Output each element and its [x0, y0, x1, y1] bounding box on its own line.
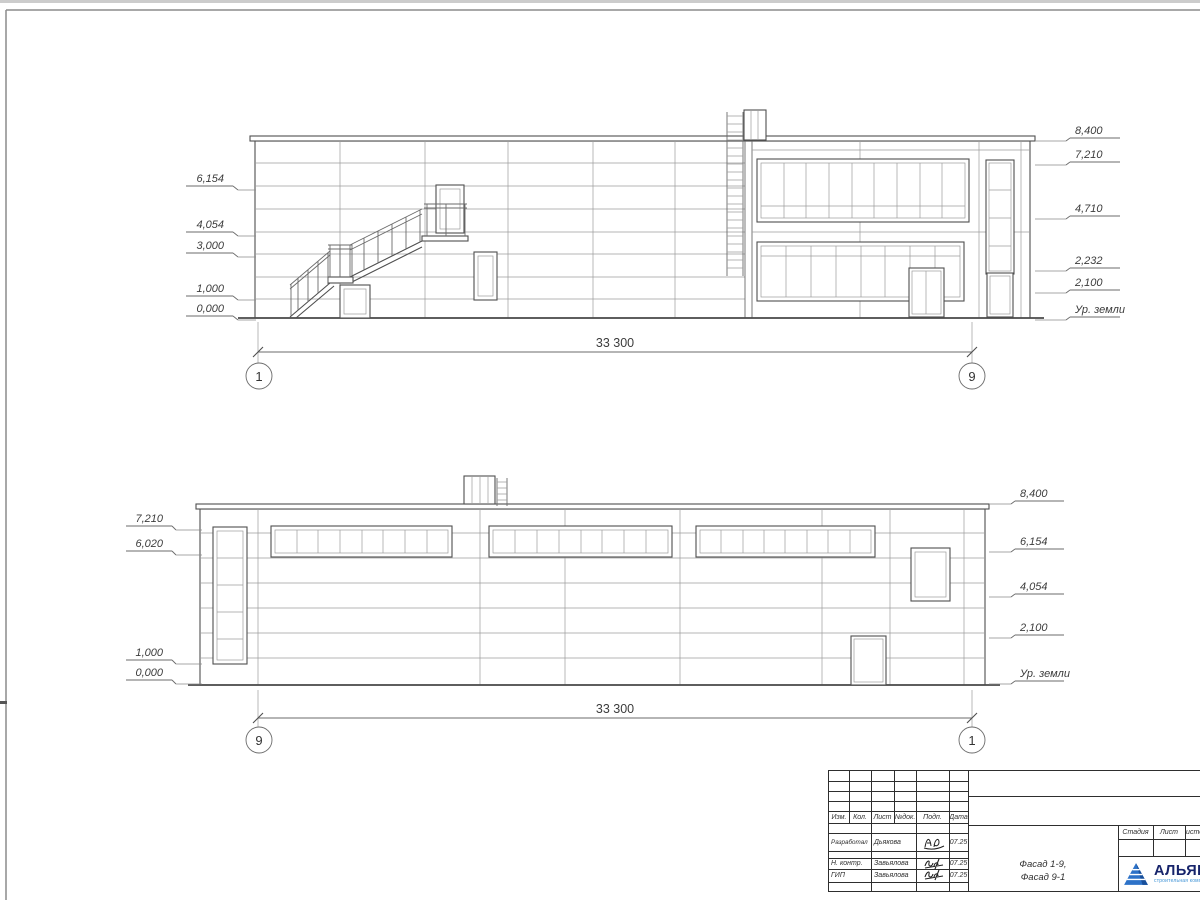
entrance-door [909, 268, 944, 317]
mark-0000-b: 0,000 [135, 667, 163, 679]
facade-9-1-drawing: 7,210 6,020 1,000 0,000 8,400 6,154 4,05… [126, 476, 1070, 753]
mark-4054: 4,054 [196, 219, 224, 231]
axis-bubble-1b: 1 [968, 733, 975, 748]
mark-7210: 7,210 [1075, 149, 1103, 161]
row-date-gip: 07.25 [949, 869, 968, 882]
mark-2232: 2,232 [1074, 255, 1103, 267]
header-data: Дата [949, 811, 968, 823]
header-stage: Стадия [1118, 825, 1153, 839]
mark-8400: 8,400 [1075, 125, 1103, 137]
row-name-gip: Завьялова [872, 869, 918, 882]
row-role-ncontr: Н. контр. [829, 858, 873, 869]
row-name-developer: Дьякова [872, 835, 918, 850]
header-list: Лист [871, 811, 894, 823]
elevation-marks-right: 8,400 7,210 4,710 2,232 2,100 Ур. земли [1035, 125, 1125, 320]
dimension-1-9: 33 300 1 9 [246, 322, 985, 389]
signature-gip [923, 869, 947, 881]
facade-drawing-canvas: 6,154 4,054 3,000 1,000 0,000 8,400 7,21… [0, 0, 1200, 900]
side-door [987, 273, 1013, 317]
document-title: Фасад 1-9, Фасад 9-1 [970, 827, 1116, 892]
mark-ground-level: Ур. земли [1074, 304, 1125, 316]
mark-1000: 1,000 [196, 283, 224, 295]
logo-tagline: строительная компания [1154, 878, 1200, 884]
signature-developer [921, 833, 947, 850]
rear-door [851, 636, 886, 685]
row-date-ncontr: 07.25 [949, 858, 968, 869]
dimension-text: 33 300 [596, 336, 634, 350]
header-ndok: №док. [894, 811, 916, 823]
logo-name: АЛЬЯНС [1154, 865, 1200, 878]
mark-4054-b: 4,054 [1020, 581, 1048, 593]
axis-bubble-9b: 9 [255, 733, 262, 748]
header-izm: Изм. [829, 811, 849, 823]
dimension-9-1: 33 300 9 1 [246, 690, 985, 753]
mark-8400-b: 8,400 [1020, 488, 1048, 500]
rooftop-structure [464, 476, 507, 506]
elevation-marks-right-2: 8,400 6,154 4,054 2,100 Ур. земли [989, 488, 1070, 684]
mark-7210-b: 7,210 [135, 513, 163, 525]
header-kol: Кол. [849, 811, 871, 823]
row-name-ncontr: Завьялова [872, 858, 918, 869]
document-title-line1: Фасад 1-9, [1019, 858, 1066, 871]
mark-6154-b: 6,154 [1020, 536, 1048, 548]
mark-1000-b: 1,000 [135, 647, 163, 659]
logo-triangle-icon [1123, 861, 1149, 887]
elevation-marks-left: 6,154 4,054 3,000 1,000 0,000 [186, 173, 256, 320]
axis-bubble-1: 1 [255, 369, 262, 384]
mark-0000: 0,000 [196, 303, 224, 315]
drawing-sheet: 6,154 4,054 3,000 1,000 0,000 8,400 7,21… [0, 0, 1200, 900]
facade-1-9-drawing: 6,154 4,054 3,000 1,000 0,000 8,400 7,21… [186, 110, 1125, 389]
row-role-gip: ГИП [829, 869, 873, 882]
row-role-developer: Разработал [829, 835, 873, 850]
row-date-developer: 07.25 [949, 835, 968, 850]
axis-bubble-9: 9 [968, 369, 975, 384]
sheet-frame [0, 0, 1200, 900]
header-sheets: Листов [1185, 825, 1200, 839]
dimension-text-2: 33 300 [596, 702, 634, 716]
mark-2100-b: 2,100 [1019, 622, 1048, 634]
mark-4710: 4,710 [1075, 203, 1103, 215]
document-title-line2: Фасад 9-1 [1021, 871, 1066, 884]
mark-6154: 6,154 [196, 173, 224, 185]
mark-2100: 2,100 [1074, 277, 1103, 289]
header-sheet: Лист [1153, 825, 1185, 839]
mark-ground-level-b: Ур. земли [1019, 668, 1070, 680]
company-logo: АЛЬЯНС строительная компания [1123, 859, 1200, 889]
mark-6020-b: 6,020 [135, 538, 163, 550]
ribbon-windows [271, 526, 875, 557]
title-block: Изм. Кол. Лист №док. Подп. Дата Разработ… [828, 770, 1200, 892]
elevation-marks-left-2: 7,210 6,020 1,000 0,000 [126, 513, 202, 684]
header-podp: Подп. [916, 811, 949, 823]
mark-3000: 3,000 [196, 240, 224, 252]
